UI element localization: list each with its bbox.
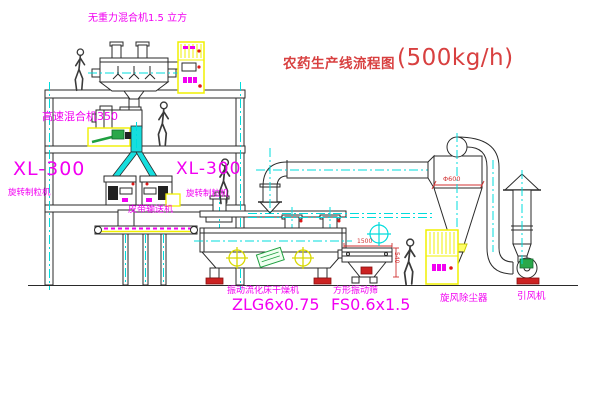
label-granulator-model-left: XL-300	[13, 160, 85, 179]
label-granulator-model-right: XL-300	[176, 161, 241, 178]
induced-draft-fan	[487, 170, 541, 284]
label-granulator-name-right: 旋转制粒机	[186, 190, 229, 199]
gravity-mixer	[88, 42, 188, 110]
granulator-left	[104, 176, 136, 205]
label-belt-conveyor: 皮带输送机	[128, 206, 173, 215]
vibrating-sieve	[342, 222, 399, 283]
label-dryer-model: ZLG6x0.75	[232, 297, 320, 313]
granulator-right	[140, 176, 180, 206]
label-gravity-mixer: 无重力混合机1.5 立方	[88, 14, 187, 24]
exhaust-duct	[256, 148, 438, 213]
control-cabinet-1	[178, 42, 204, 93]
label-sieve-model: FS0.6x1.5	[331, 297, 410, 313]
title-capacity: (500kg/h)	[397, 45, 514, 71]
dim-sieve-length: 1500	[357, 239, 372, 245]
dim-cyclone-diameter: Φ600	[443, 176, 461, 183]
title-text: 农药生产线流程图	[283, 45, 395, 72]
label-cyclone: 旋风除尘器	[440, 294, 488, 304]
label-fan: 引风机	[517, 292, 546, 302]
dim-sieve-height: 540	[393, 252, 399, 263]
belt-conveyor	[95, 226, 198, 285]
diagram-title: 农药生产线流程图 (500kg/h)	[283, 45, 514, 72]
label-high-speed-mixer: 高速混合机350	[42, 111, 118, 122]
cad-flow-diagram: 农药生产线流程图 (500kg/h) 无重力混合机1.5 立方 高速混合机350…	[0, 0, 600, 403]
control-cabinet-2	[426, 230, 458, 284]
label-granulator-name-left: 旋转制粒机	[8, 189, 51, 198]
